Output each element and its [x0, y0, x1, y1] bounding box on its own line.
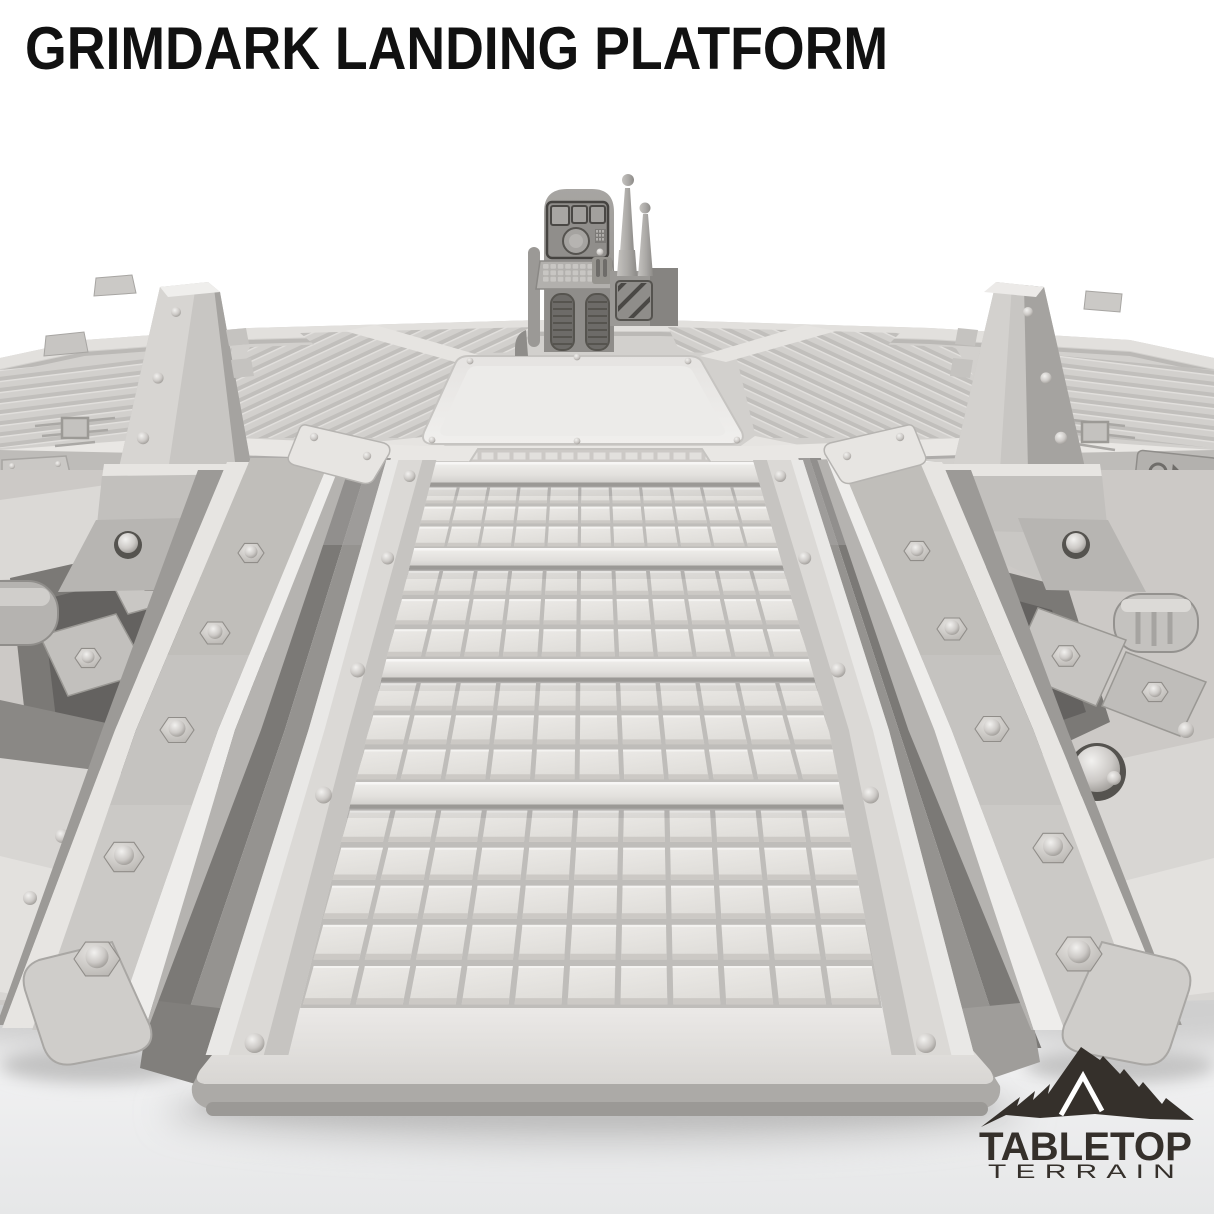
svg-text:TERRAIN: TERRAIN	[988, 1161, 1184, 1183]
svg-text:GRIMDARK LANDING PLATFORM: GRIMDARK LANDING PLATFORM	[25, 15, 888, 82]
